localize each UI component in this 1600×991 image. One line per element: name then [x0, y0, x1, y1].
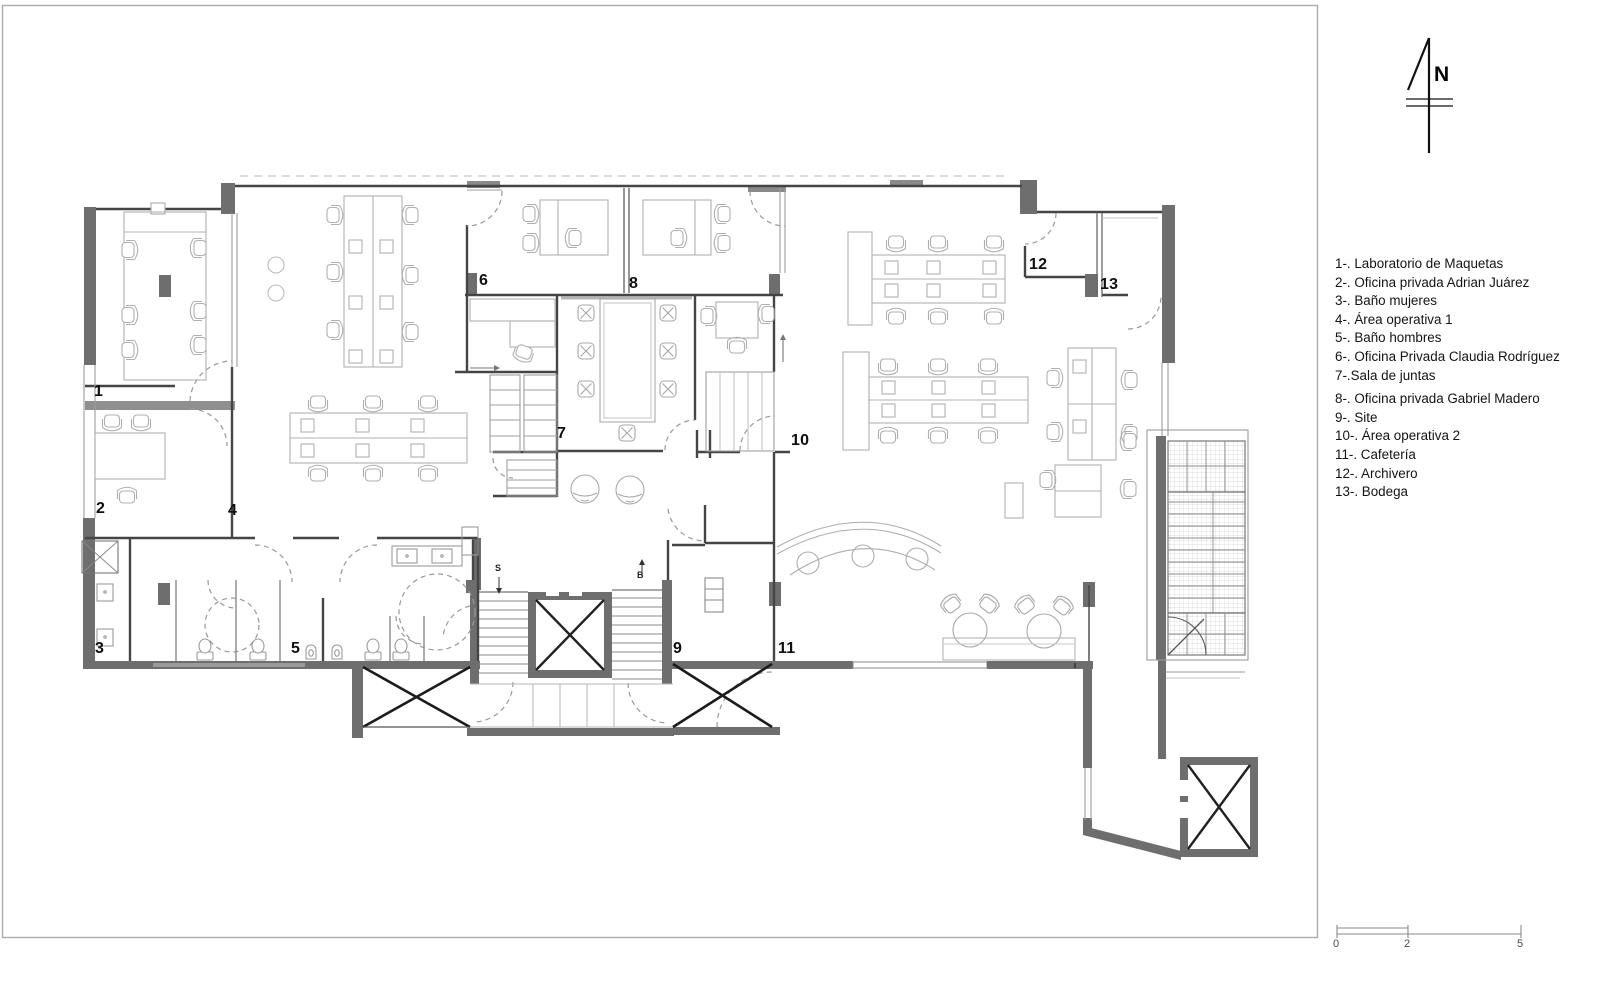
sheet-frame [3, 6, 1318, 938]
legend-item-13: 13-. Bodega [1335, 483, 1590, 502]
elevator-2 [1180, 757, 1258, 857]
cluster-a [327, 196, 418, 367]
printer-table [1005, 483, 1023, 518]
office-6b-desk [470, 299, 555, 371]
cluster-e [1040, 348, 1137, 517]
cluster-d [843, 352, 1028, 450]
office-6-desk [523, 200, 608, 255]
legend-item-10: 10-. Área operativa 2 [1335, 427, 1590, 446]
bathroom-fixtures [82, 527, 478, 661]
site-rack [705, 578, 723, 612]
cafeteria-tables [939, 591, 1076, 660]
storage-shelves [490, 375, 557, 496]
legend-item-3: 3-. Baño mujeres [1335, 292, 1590, 311]
conference-table [578, 299, 676, 441]
lounge-chairs [571, 475, 644, 504]
cluster-c [848, 232, 1005, 325]
legend-item-1: 1-. Laboratorio de Maquetas [1335, 255, 1590, 274]
legend-item-2: 2-. Oficina privada Adrian Juárez [1335, 274, 1590, 293]
cluster-b [290, 396, 467, 481]
legend-item-6: 6-. Oficina Privada Claudia Rodríguez [1335, 348, 1590, 367]
legend: 1-. Laboratorio de Maquetas 2-. Oficina … [1335, 255, 1590, 502]
office-8-desk [643, 200, 730, 255]
legend-item-5: 5-. Baño hombres [1335, 329, 1590, 348]
floorplan-sheet: 12345678910111213SB025N 1-. Laboratorio … [0, 0, 1600, 991]
north-arrow-icon [1406, 38, 1453, 153]
legend-item-12: 12-. Archivero [1335, 465, 1590, 484]
wall-fills [83, 180, 1181, 860]
stair-core [470, 559, 673, 727]
furniture [82, 196, 1137, 661]
cafeteria-banquette [777, 522, 941, 575]
office-2-desk [95, 415, 165, 503]
legend-item-9: 9-. Site [1335, 409, 1590, 428]
legend-item-8: 8-. Oficina privada Gabriel Madero [1335, 390, 1590, 409]
legend-item-4: 4-. Área operativa 1 [1335, 311, 1590, 330]
legend-item-7: 7-.Sala de juntas [1335, 367, 1590, 386]
legend-item-11: 11-. Cafetería [1335, 446, 1590, 465]
scale-bar-icon [1337, 925, 1521, 938]
